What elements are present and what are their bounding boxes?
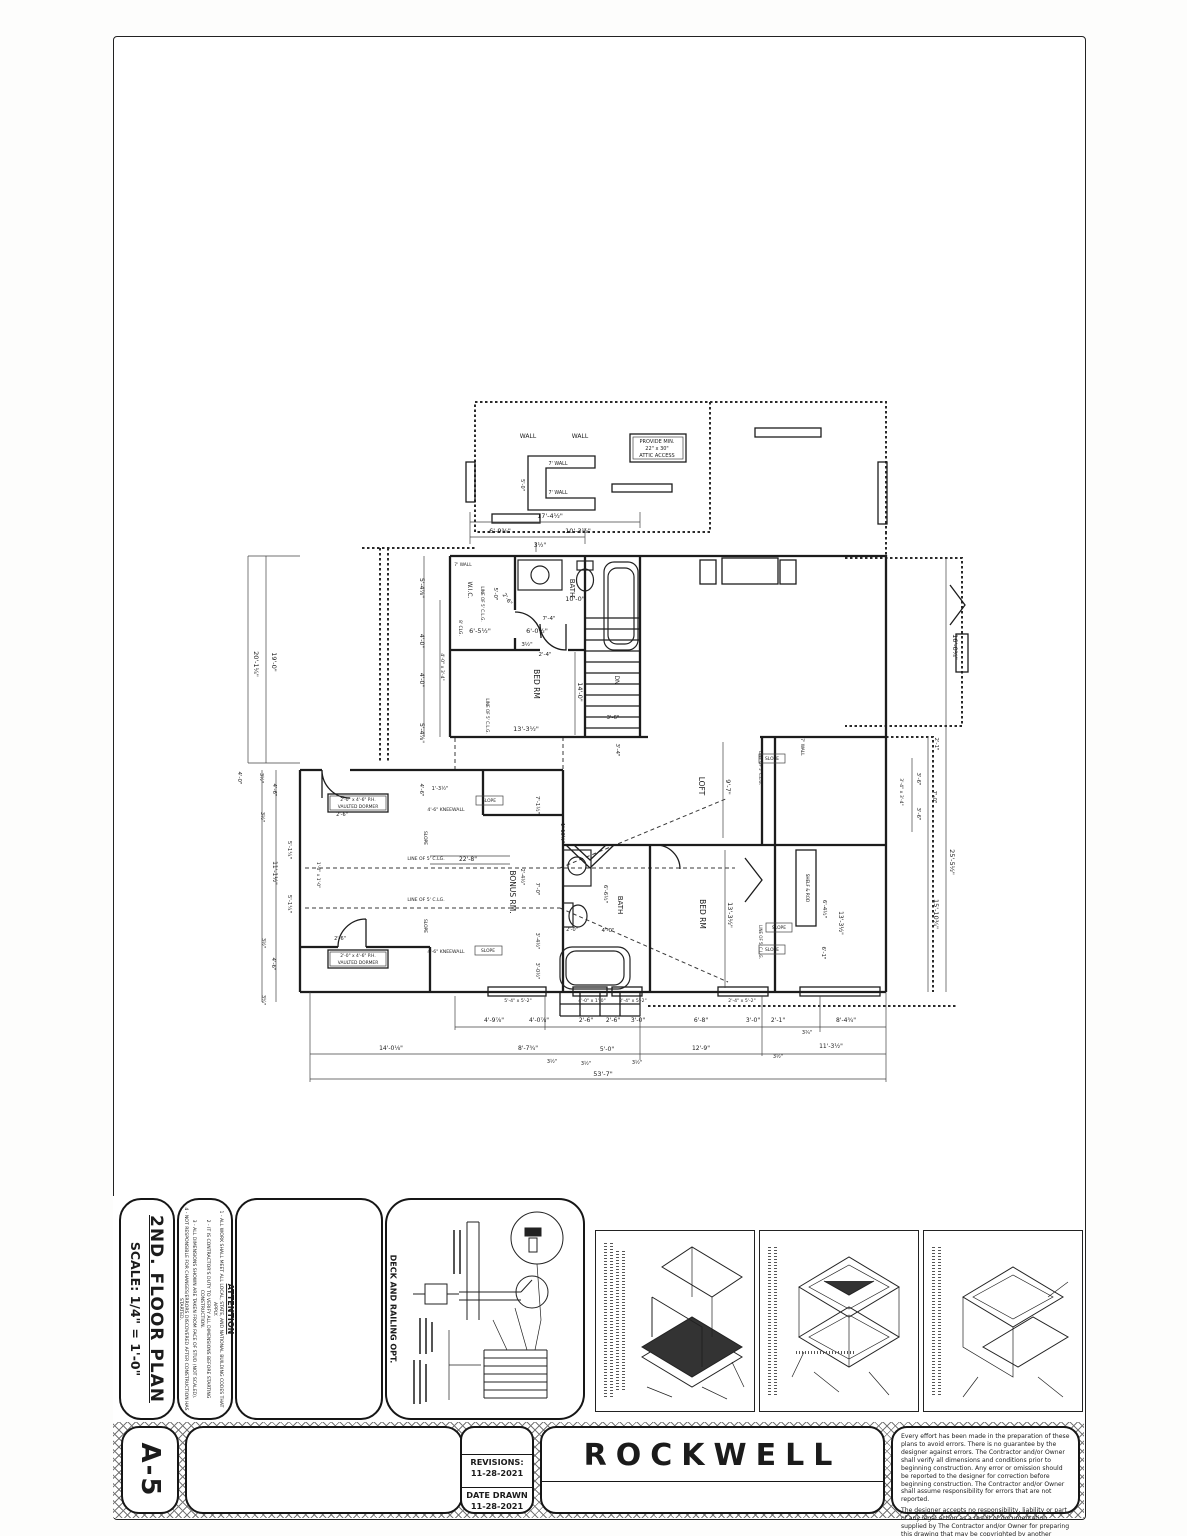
plan-annotation: 3'-0" bbox=[746, 1017, 760, 1024]
framing-detail-panel-3 bbox=[923, 1230, 1083, 1412]
plan-annotation: BED RM bbox=[698, 899, 707, 929]
plan-annotation: 6'-5½" bbox=[469, 627, 491, 635]
plan-annotation: WALL bbox=[572, 433, 589, 440]
plan-annotation: 6'-4½" bbox=[821, 900, 828, 918]
plan-annotation: 4'-6" bbox=[271, 783, 277, 796]
plan-annotation: 4'-6" bbox=[270, 957, 276, 970]
plan-annotation: BED RM bbox=[532, 669, 541, 699]
plan-annotation: LOFT bbox=[697, 777, 706, 796]
plan-annotation: 4'-9⅞" bbox=[484, 1017, 504, 1024]
plan-annotation: 14'-0⅛" bbox=[379, 1045, 403, 1052]
plan-annotation: 4'-6" bbox=[418, 783, 424, 796]
plan-annotation: 20'-1¼" bbox=[252, 651, 260, 677]
plan-annotation: 3'-0½" bbox=[534, 963, 541, 980]
plan-annotation: 22'-8" bbox=[459, 856, 477, 863]
plan-annotation: 5'-0" bbox=[519, 479, 525, 491]
plan-annotation: 8'-7¾" bbox=[518, 1045, 538, 1052]
note-boxes bbox=[328, 754, 816, 968]
plan-annotation: 22" x 30" bbox=[645, 446, 668, 452]
attention-notes: 1 - ALL WORK SHALL MEET ALL LOCAL, STATE… bbox=[177, 1207, 223, 1412]
plan-annotation: W.I.C. bbox=[466, 582, 473, 599]
plan-annotation: SLOPE bbox=[765, 947, 779, 953]
plan-annotation: 13'-3½" bbox=[513, 725, 539, 733]
plan-annotation: 5'-4" x 5'-2" bbox=[504, 998, 531, 1004]
plan-annotation: 3½" bbox=[547, 1058, 557, 1065]
plan-annotation: 2'-6" bbox=[606, 1017, 620, 1024]
blank-titleblock-panel bbox=[185, 1426, 463, 1514]
plan-annotation: SLOPE bbox=[422, 831, 428, 845]
framing-detail-panel-2 bbox=[759, 1230, 919, 1412]
plan-scale: SCALE: 1/4" = 1'-0" bbox=[128, 1204, 143, 1414]
disclaimer-panel: Every effort has been made in the prepar… bbox=[891, 1426, 1080, 1514]
plan-annotation: 3½" bbox=[521, 641, 532, 648]
plan-annotation: 11'-1½" bbox=[271, 861, 278, 885]
plan-annotation: 53'-7" bbox=[593, 1070, 613, 1078]
plan-annotation: 4'-0" bbox=[236, 771, 242, 784]
sheet-number: A-5 bbox=[135, 1430, 165, 1510]
plan-annotation: 15'-10¾" bbox=[932, 899, 940, 929]
revisions-date: 11-28-2021 bbox=[462, 1468, 532, 1479]
plan-annotation: 5'-4⅞" bbox=[418, 723, 425, 743]
plan-annotation: BONUS RM. bbox=[508, 870, 517, 913]
blank-panel bbox=[235, 1198, 383, 1420]
revisions-label: REVISIONS: bbox=[462, 1457, 532, 1468]
plan-annotation: 6'-1" bbox=[820, 946, 826, 959]
plan-annotation: 25'-5½" bbox=[948, 849, 956, 875]
plan-annotation: LINE OF 5' C.L.G. bbox=[758, 751, 763, 785]
plan-annotation: 3½" bbox=[632, 1059, 642, 1066]
plan-annotation: 2'-4" x 5'-2" bbox=[728, 998, 755, 1004]
plan-annotation: VAULTED DORMER bbox=[338, 960, 379, 966]
plan-annotation: LINE OF 5' C.L.G. bbox=[485, 698, 490, 733]
plan-annotation: 3'-6" bbox=[915, 807, 921, 820]
plan-annotation: 3½" bbox=[259, 812, 266, 822]
plan-annotation: 7' WALL bbox=[454, 562, 472, 568]
plan-annotation: 4'-0⅞" bbox=[529, 1017, 549, 1024]
plan-annotation: 11'-3½" bbox=[819, 1043, 843, 1050]
title-band: 2ND. FLOOR PLAN SCALE: 1/4" = 1'-0" ATTE… bbox=[113, 1196, 1084, 1518]
plan-annotation: SLOPE bbox=[482, 798, 496, 804]
date-drawn: 11-28-2021 bbox=[462, 1501, 532, 1512]
plan-annotation: 5'-1¼" bbox=[286, 841, 292, 859]
plan-annotation: 10'-0" bbox=[565, 595, 585, 603]
plan-annotation: 3½" bbox=[258, 773, 265, 783]
plan-annotation: 16'-0¾" bbox=[951, 634, 959, 660]
plan-annotation: LINE OF 5' C.LG. bbox=[407, 856, 444, 862]
attention-note: 1 - ALL WORK SHALL MEET ALL LOCAL, STATE… bbox=[212, 1207, 223, 1412]
plan-annotation: 2'-4½" bbox=[519, 869, 526, 886]
plan-annotation: 7' WALL bbox=[548, 461, 567, 467]
attention-note: 2 - IT IS CONTRACTOR'S DUTY TO VERIFY AL… bbox=[198, 1207, 209, 1412]
plan-annotation: WALL bbox=[520, 433, 537, 440]
plan-annotation: 4'-6" KNEEWALL bbox=[427, 807, 465, 813]
plan-annotation: 2'-1" bbox=[771, 1017, 785, 1024]
plan-annotation: 5'-0" bbox=[492, 587, 498, 600]
plan-annotation: 3½" bbox=[581, 1060, 591, 1067]
plan-annotation: 5'-4⅞" bbox=[418, 578, 425, 598]
plan-annotation: SHELF & ROD bbox=[805, 874, 810, 903]
plan-annotation: 13'-3½" bbox=[837, 911, 844, 935]
project-title-panel: ROCKWELL bbox=[540, 1426, 885, 1514]
plan-annotation: 2'-6" bbox=[501, 592, 513, 606]
plan-annotation: 1'-3½" bbox=[432, 785, 449, 792]
plan-annotation: 3'-4" bbox=[614, 743, 620, 756]
plan-annotation: DN bbox=[613, 675, 620, 684]
plan-annotation: ATTIC ACCESS bbox=[639, 453, 674, 459]
plan-annotation: 7'-0" bbox=[931, 790, 937, 803]
plan-annotation: 3¼" bbox=[260, 995, 266, 1005]
plan-annotation: 1'-10½" bbox=[559, 823, 566, 843]
plan-annotation: 7'-1½" bbox=[534, 796, 541, 814]
plan-annotation: 19'-0" bbox=[270, 652, 278, 672]
plan-annotation: 1'-0" x 1'-0" bbox=[315, 862, 321, 888]
project-title: ROCKWELL bbox=[542, 1428, 883, 1473]
floor-plan-svg: WALLWALLPROVIDE MIN.22" x 30"ATTIC ACCES… bbox=[0, 0, 1187, 1196]
plan-annotation: 3½" bbox=[773, 1053, 783, 1060]
plan-annotation: 14'-0" bbox=[576, 682, 584, 702]
plan-annotation: 7' WALL bbox=[799, 738, 805, 756]
plan-annotation: 10'-3½" bbox=[565, 527, 591, 535]
plan-annotation: 8'-4¾" bbox=[836, 1017, 856, 1024]
attention-note: 4 - NOT RESPONSIBLE FOR CHANGES/ERRORS D… bbox=[177, 1207, 188, 1412]
plan-annotation: 4'-0" x 1'-0" bbox=[578, 998, 605, 1004]
plan-annotation: 4'-0" bbox=[418, 634, 425, 648]
sheet-number-panel: A-5 bbox=[121, 1426, 179, 1514]
plan-annotation: SLOPE bbox=[481, 948, 495, 954]
plan-annotation: PROVIDE MIN. bbox=[640, 439, 675, 445]
plan-annotation: 6'-0½" bbox=[526, 627, 548, 635]
deck-detail-drawing bbox=[389, 1200, 585, 1418]
plan-annotation: 7'-4" bbox=[542, 616, 555, 622]
plan-annotation: 3'-0" bbox=[631, 1017, 645, 1024]
plan-annotation: 2'-6" bbox=[334, 936, 346, 942]
plan-annotation: 4'-0" bbox=[418, 673, 425, 687]
plan-annotation: 3'-4½" bbox=[534, 933, 541, 950]
plan-annotation: 3½" bbox=[260, 938, 267, 948]
plan-annotation: 2'-1" bbox=[933, 737, 939, 750]
attention-panel: ATTENTION 1 - ALL WORK SHALL MEET ALL LO… bbox=[177, 1198, 233, 1420]
plan-annotation: 17'-4½" bbox=[537, 512, 563, 520]
plan-annotation: 13'-3½" bbox=[726, 902, 734, 928]
drawing-sheet: WALLWALLPROVIDE MIN.22" x 30"ATTIC ACCES… bbox=[0, 0, 1187, 1536]
plan-annotation: 12'-9" bbox=[692, 1045, 710, 1052]
attention-note: 3 - ALL DIMENSIONS SHOWN ARE TAKEN FROM … bbox=[190, 1207, 196, 1412]
attention-title: ATTENTION bbox=[226, 1207, 235, 1412]
disclaimer-paragraph-2: The designer accepts no responsibility, … bbox=[901, 1507, 1070, 1536]
plan-annotation: 2'-0" x 4'-6" P.H. bbox=[340, 953, 376, 959]
plan-annotation: 2'-0" x 4'-6" P.H. bbox=[340, 797, 376, 803]
deck-detail-panel: DECK AND RAILING OPT. bbox=[385, 1198, 585, 1420]
plan-annotation: 2'-6" bbox=[579, 1017, 593, 1024]
plan-annotation: 2'-4" x 5'-2" bbox=[619, 998, 646, 1004]
plan-annotation: 3'-6" bbox=[606, 715, 619, 721]
plan-title: 2ND. FLOOR PLAN bbox=[146, 1204, 166, 1414]
plan-annotation: 5'-1¼" bbox=[286, 895, 292, 913]
plan-annotation: LINE OF 5' C.L.G. bbox=[758, 925, 763, 959]
date-drawn-label: DATE DRAWN bbox=[462, 1490, 532, 1501]
disclaimer-paragraph-1: Every effort has been made in the prepar… bbox=[901, 1433, 1070, 1504]
plan-annotation: 6'-9⅜" bbox=[489, 527, 511, 535]
project-title-blank-row bbox=[542, 1481, 883, 1514]
plan-annotation: 2'-4" bbox=[538, 652, 551, 658]
plan-annotations: WALLWALLPROVIDE MIN.22" x 30"ATTIC ACCES… bbox=[236, 433, 959, 1078]
plan-annotation: 7'-0" bbox=[534, 882, 540, 895]
plan-annotation: 3½" bbox=[534, 542, 547, 549]
plan-annotation: 9'-7" bbox=[724, 779, 732, 794]
plan-annotation: 6'-8" bbox=[694, 1017, 708, 1024]
plan-annotation: VAULTED DORMER bbox=[338, 804, 379, 810]
plan-annotation: 4'-6" KNEEWALL bbox=[427, 949, 465, 955]
plan-annotation: 2'-0" bbox=[566, 927, 578, 933]
bath-fixtures bbox=[518, 560, 638, 989]
plan-annotation: 8' CLG. bbox=[457, 620, 463, 636]
plan-annotation: 3¾" bbox=[802, 1030, 812, 1036]
titleblock-plan-name-panel: 2ND. FLOOR PLAN SCALE: 1/4" = 1'-0" bbox=[119, 1198, 175, 1420]
plan-annotation: 6'-6½" bbox=[602, 885, 609, 903]
plan-annotation: SLOPE bbox=[765, 756, 779, 762]
plan-annotation: 4'-0" bbox=[601, 928, 614, 934]
plan-annotation: 4'-0" x 3'-4" bbox=[439, 653, 445, 680]
plan-annotation: 2'-6" bbox=[336, 812, 348, 818]
plan-annotation: 7' WALL bbox=[548, 490, 567, 496]
plan-annotation: LINE OF 5' C.LG. bbox=[407, 897, 444, 903]
plan-annotation: 3'-4" x 3'-4" bbox=[898, 778, 904, 805]
revisions-panel: REVISIONS: 11-28-2021 DATE DRAWN 11-28-2… bbox=[460, 1426, 534, 1514]
plan-annotation: 5'-0" bbox=[600, 1046, 614, 1053]
plan-annotation: SLOPE bbox=[422, 919, 428, 933]
plan-annotation: 3'-6" bbox=[915, 772, 921, 785]
plan-annotation: LINE OF 5' C.L.G. bbox=[480, 586, 485, 621]
plan-annotation: BATH bbox=[616, 896, 624, 915]
stairs bbox=[560, 618, 640, 1016]
framing-detail-panel-1 bbox=[595, 1230, 755, 1412]
plan-annotation: SLOPE bbox=[772, 925, 786, 931]
